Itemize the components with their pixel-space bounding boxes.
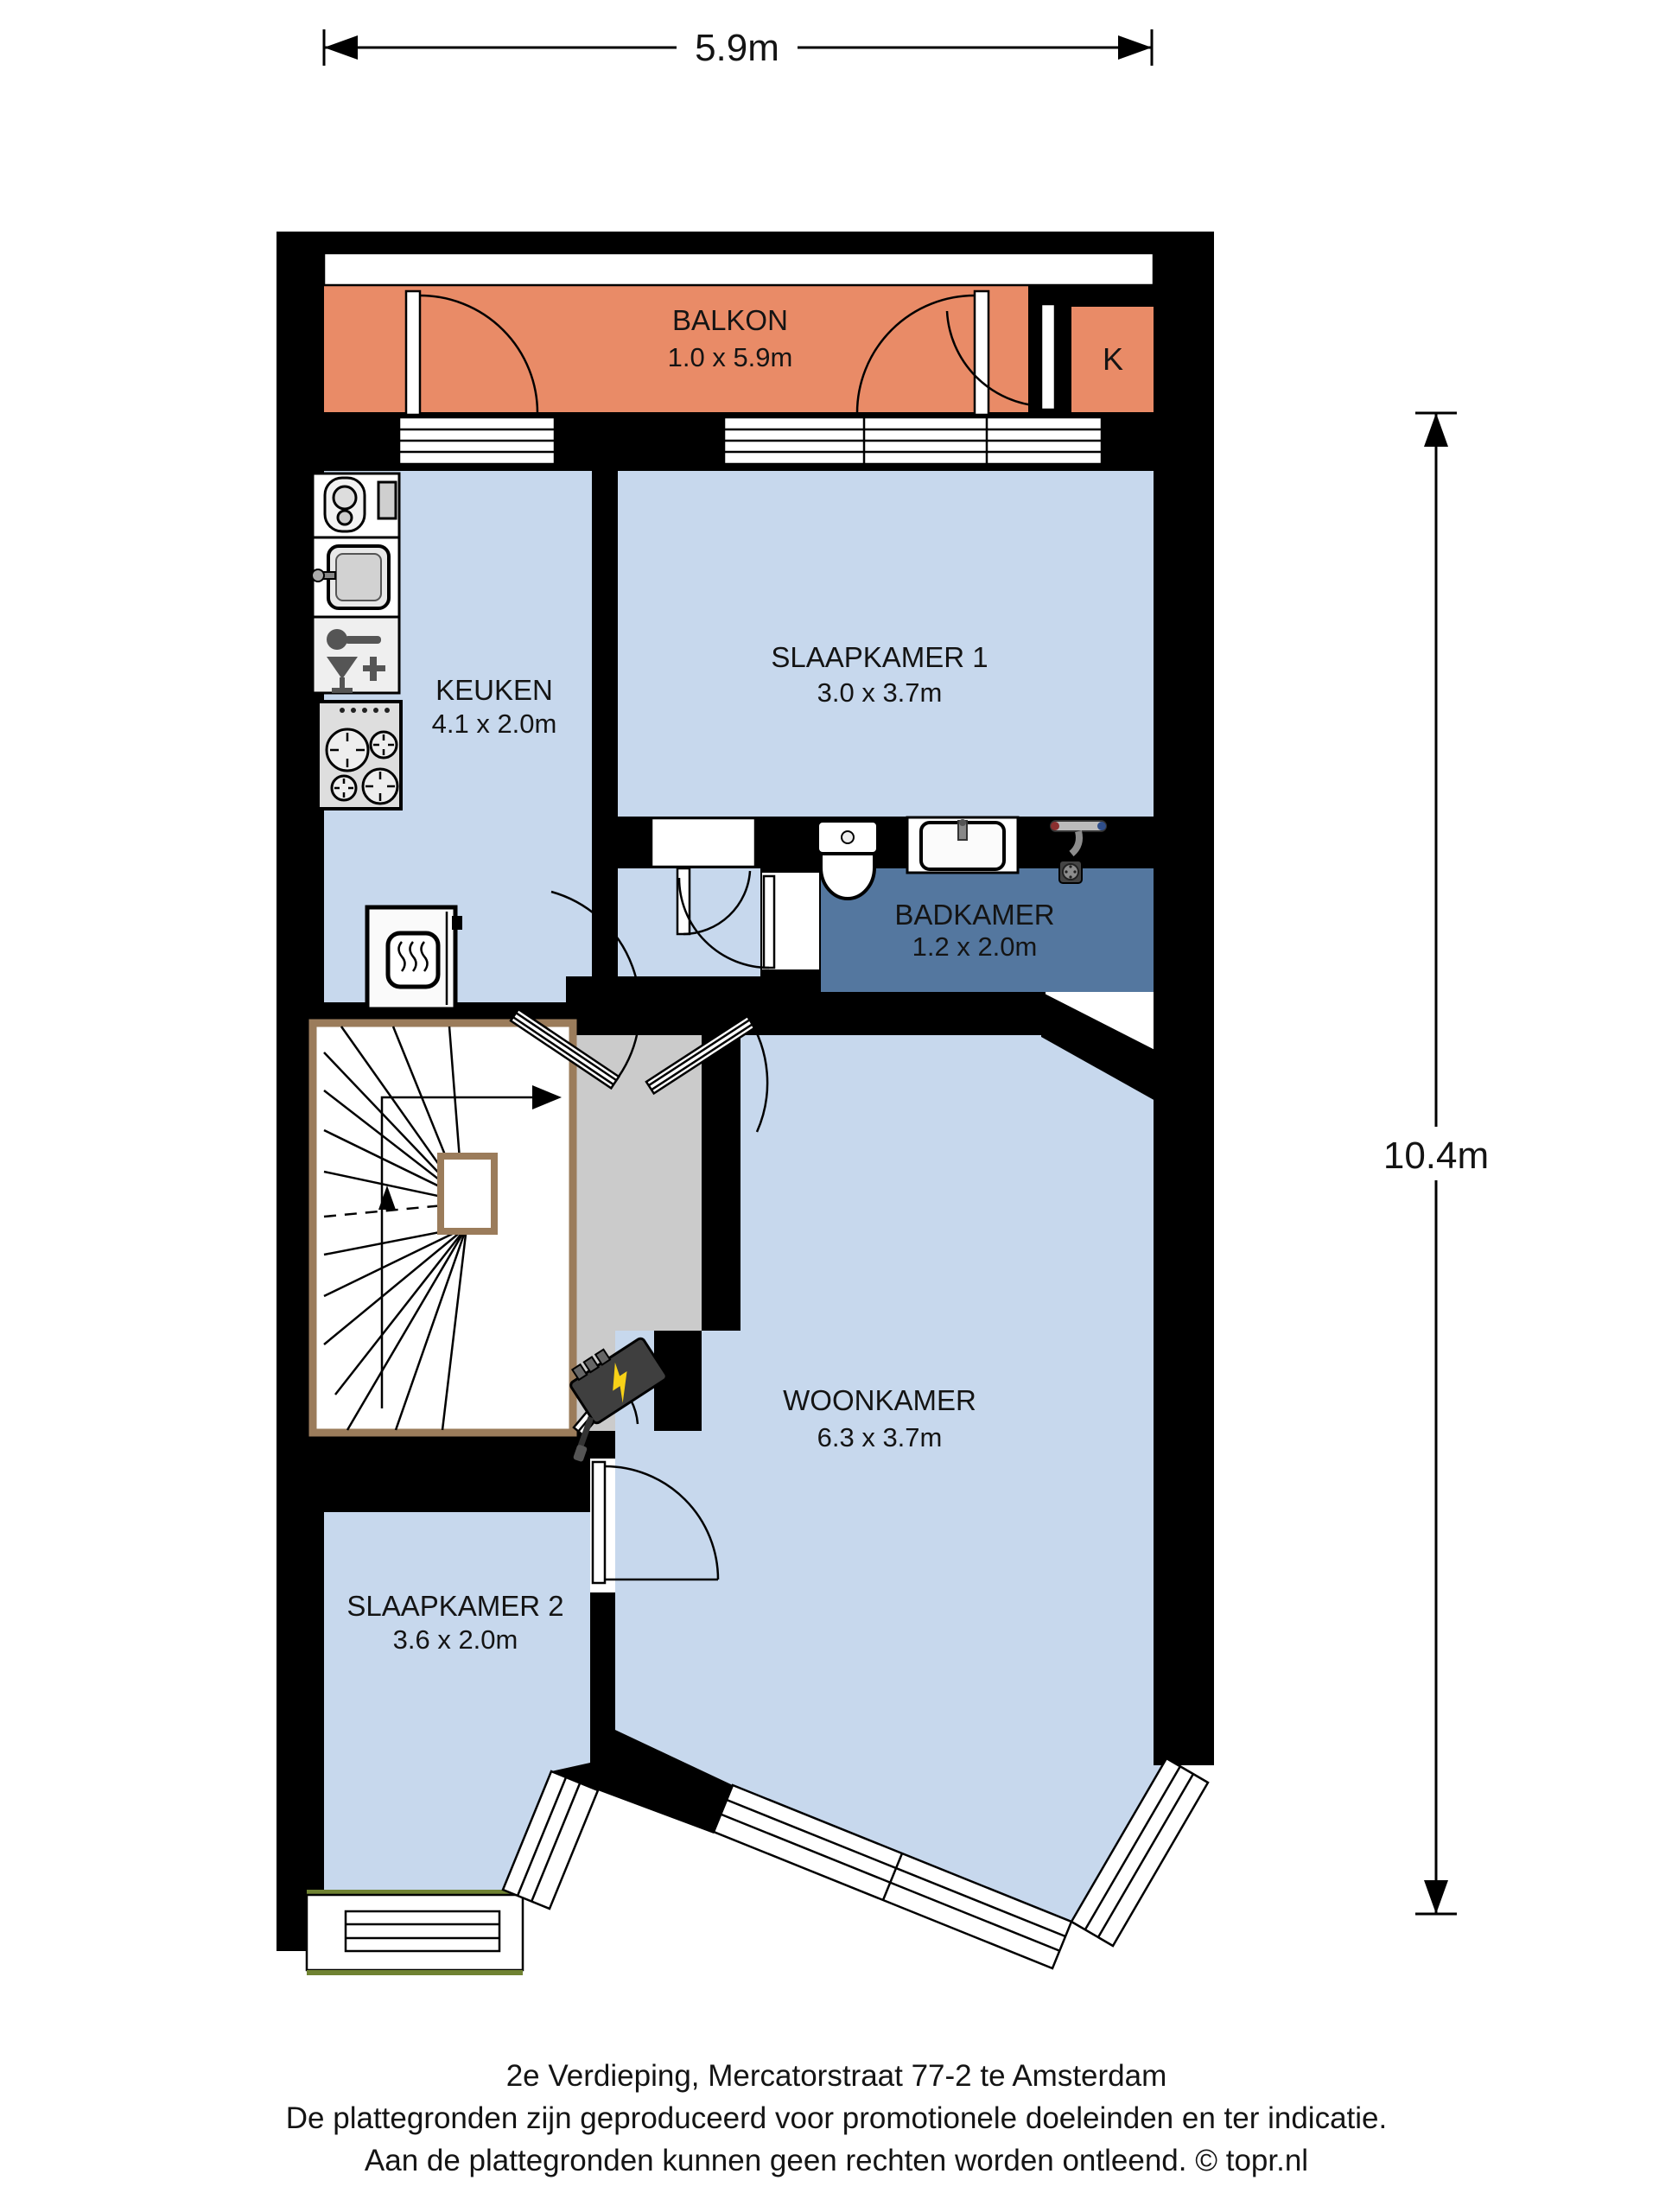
bathroom-door-leaf	[764, 876, 774, 968]
kitchen-balcony-door-window	[399, 417, 555, 464]
bedroom2-door-leaf	[593, 1462, 605, 1583]
closet-door-leaf	[1041, 304, 1055, 410]
closet-label: K	[1103, 341, 1123, 377]
vertical-dimension: 10.4m	[1374, 413, 1498, 1914]
up-arrow-icon	[1424, 413, 1448, 447]
balcony-door-leaf	[406, 291, 420, 415]
horizontal-dimension: 5.9m	[324, 22, 1152, 73]
bedroom2-window	[307, 1890, 523, 1975]
footer-disclaimer2: Aan de plattegronden kunnen geen rechten…	[365, 2144, 1308, 2177]
bedroom1-balcony-window	[724, 417, 1102, 464]
livingroom-size: 6.3 x 3.7m	[817, 1422, 943, 1452]
bedroom2-size: 3.6 x 2.0m	[393, 1624, 518, 1655]
floorplan-page: 5.9m 10.4m	[0, 0, 1659, 2212]
water-heater-icon	[313, 474, 399, 537]
right-arrow-icon	[1118, 35, 1152, 60]
washbasin-icon	[907, 817, 1018, 873]
footer-disclaimer1: De plattegronden zijn geproduceerd voor …	[286, 2101, 1387, 2135]
sink-icon	[312, 537, 399, 617]
bathroom-size: 1.2 x 2.0m	[912, 931, 1038, 962]
livingroom-label: WOONKAMER	[783, 1384, 976, 1416]
stove-icon	[318, 702, 401, 809]
height-dimension-label: 10.4m	[1383, 1135, 1489, 1177]
kitchen-size: 4.1 x 2.0m	[432, 709, 557, 739]
bedroom2-label: SLAAPKAMER 2	[346, 1590, 563, 1622]
floorplan-drawing: 5.9m 10.4m	[0, 0, 1659, 2212]
kitchen-label: KEUKEN	[435, 674, 553, 706]
stair-newel	[441, 1156, 494, 1231]
down-arrow-icon	[1424, 1880, 1448, 1914]
left-arrow-icon	[324, 35, 358, 60]
balcony-door2-leaf	[975, 291, 988, 415]
balcony-size: 1.0 x 5.9m	[668, 342, 793, 372]
bathroom-label: BADKAMER	[894, 899, 1054, 931]
footer-caption: 2e Verdieping, Mercatorstraat 77-2 te Am…	[286, 2059, 1387, 2177]
toilet-icon	[817, 821, 878, 899]
boiler-icon	[367, 907, 462, 1009]
bedroom1-size: 3.0 x 3.7m	[817, 677, 943, 708]
staircase	[313, 1023, 573, 1433]
balcony-ledge	[324, 253, 1154, 285]
width-dimension-label: 5.9m	[695, 27, 779, 69]
bedroom1-label: SLAAPKAMER 1	[771, 641, 988, 673]
dishwasher-icon	[313, 617, 399, 693]
shower-drain-icon	[1059, 861, 1082, 883]
footer-address: 2e Verdieping, Mercatorstraat 77-2 te Am…	[506, 2059, 1167, 2093]
balcony-label: BALKON	[672, 304, 788, 336]
bedroom1-door-opening	[652, 818, 755, 867]
